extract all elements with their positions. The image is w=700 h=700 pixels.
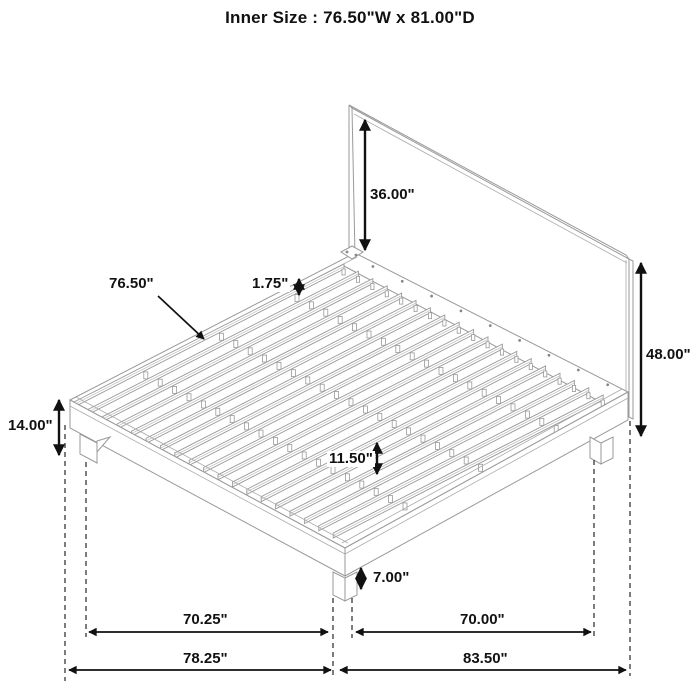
inner-size-title: Inner Size : 76.50"W x 81.00"D <box>0 8 700 28</box>
label-base-depth-outer: 83.50" <box>461 651 510 667</box>
label-base-width-outer: 78.25" <box>181 651 230 667</box>
label-base-width-inner: 70.25" <box>181 612 230 628</box>
arrow-76-5in <box>158 296 204 339</box>
front-leg-right-face <box>345 572 357 601</box>
label-leg-height: 7.00" <box>371 570 411 586</box>
label-slat-width: 1.75" <box>250 276 290 292</box>
right-leg-right-face <box>601 437 613 464</box>
isometric-bed-drawing <box>0 0 700 700</box>
label-headboard-panel-height: 36.00" <box>368 187 417 203</box>
label-headboard-total-height: 48.00" <box>644 347 693 363</box>
label-slat-length: 76.50" <box>107 276 156 292</box>
front-leg-left-face <box>333 572 345 601</box>
label-base-depth-inner: 70.00" <box>458 612 507 628</box>
right-leg-left-face <box>590 437 601 464</box>
label-platform-surface-height: 14.00" <box>6 418 55 434</box>
bed-dimension-diagram: Inner Size : 76.50"W x 81.00"D 36.00" 76… <box>0 0 700 700</box>
label-slat-support-spacing: 11.50" <box>327 451 375 467</box>
